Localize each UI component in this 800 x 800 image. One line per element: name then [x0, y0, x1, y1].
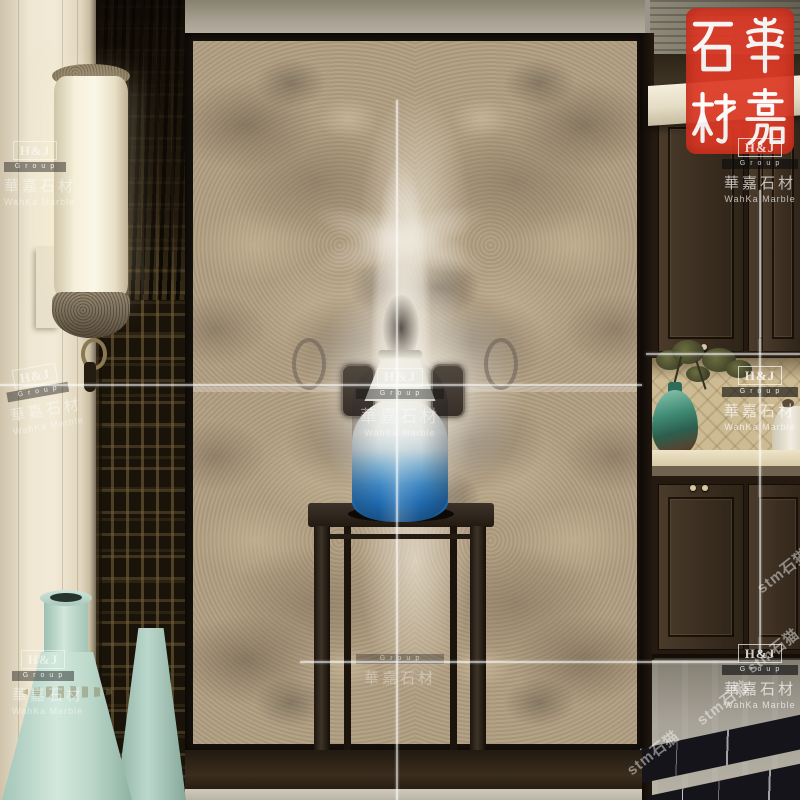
hj-cjk-label: 華嘉石材: [356, 667, 444, 688]
ceiling: [185, 0, 645, 36]
red-seal-stamp: 石 華 材 嘉: [686, 8, 794, 154]
watermark-hj-bottom-left: H&J Group 華嘉石材 WahKa Marble: [12, 650, 74, 716]
marble-wall-base: [185, 750, 642, 792]
marble-arc-motif: [484, 338, 518, 390]
hj-en-label: WahKa Marble: [4, 197, 66, 207]
hj-logo: H&J: [738, 138, 782, 157]
cabinet-door: [658, 484, 744, 650]
guide-line-horizontal-right: [646, 353, 800, 355]
hj-group-label: Group: [722, 159, 798, 169]
watermark-hj-bottom-center: Group 華嘉石材: [356, 652, 444, 688]
marble-arc-motif: [292, 338, 326, 390]
stand-leg: [450, 526, 457, 772]
seal-char-hua-art: [742, 14, 788, 76]
watermark-hj-mid-left: H&J Group 華嘉石材 WahKa Marble: [3, 361, 76, 437]
guide-line-horizontal-left: [0, 384, 642, 386]
lamp-tassel: [84, 362, 96, 392]
guide-line-horizontal-lower: [300, 661, 738, 663]
hj-group-label: Group: [12, 671, 74, 681]
cabinet-knob: [702, 485, 708, 491]
seal-char-shi-art: [690, 14, 736, 76]
watermark-hj-top-left: H&J Group 華嘉石材 WahKa Marble: [4, 141, 66, 207]
watermark-hj-center: H&J Group 華嘉石材 WahKa Marble: [356, 368, 444, 438]
hj-cjk-label: 華嘉石材: [356, 402, 444, 427]
hj-group-label: Group: [356, 389, 444, 399]
hj-group-label: Group: [4, 162, 66, 172]
niche-countertop: [652, 450, 800, 466]
plant-foliage: [672, 340, 704, 364]
hj-cjk-label: 華嘉石材: [4, 175, 66, 196]
guide-line-vertical-center: [396, 100, 398, 800]
guide-line-vertical-right: [759, 190, 761, 654]
hj-logo: H&J: [21, 650, 65, 669]
niche-counter-edge: [652, 466, 800, 476]
hj-logo: H&J: [13, 141, 57, 160]
celadon-vase-neck: [44, 600, 88, 656]
light-floor-strip: [185, 789, 642, 800]
celadon-vase-mouth: [50, 593, 82, 602]
hj-en-label: WahKa Marble: [356, 428, 444, 438]
showroom-photo: 石 華 材 嘉 H&J Group 華嘉石材 WahKa Marble: [0, 0, 800, 800]
hj-en-label: WahKa Marble: [12, 706, 74, 716]
cabinet-knob: [690, 485, 696, 491]
stand-leg: [344, 526, 351, 772]
hj-cjk-label: 華嘉石材: [12, 684, 74, 705]
stand-apron: [330, 534, 472, 539]
